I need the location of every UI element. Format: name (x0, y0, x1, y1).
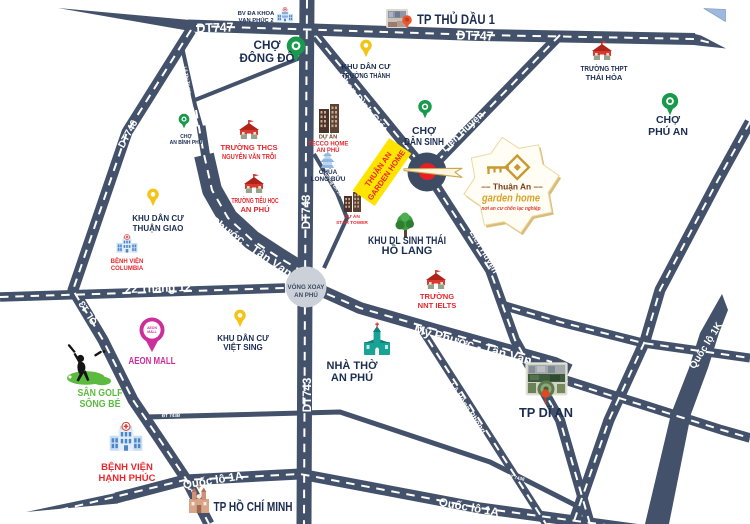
svg-text:CHÙA: CHÙA (319, 167, 338, 176)
svg-text:STAR TOWER: STAR TOWER (336, 220, 368, 226)
svg-text:AN BÌNH PHÚ: AN BÌNH PHÚ (170, 138, 203, 146)
svg-text:DÂN SINH: DÂN SINH (404, 135, 444, 148)
svg-text:TRƯỜNG: TRƯỜNG (420, 292, 454, 301)
svg-text:garden home: garden home (481, 193, 540, 205)
svg-text:SÔNG BÉ: SÔNG BÉ (80, 397, 121, 410)
svg-text:NNT IELTS: NNT IELTS (418, 301, 457, 310)
svg-text:DỰ ÁN: DỰ ÁN (344, 213, 360, 220)
svg-text:NGUYỄN VĂN TRỖI: NGUYỄN VĂN TRỖI (222, 152, 276, 161)
svg-text:CHỢ: CHỢ (254, 38, 282, 52)
svg-text:–– Thuận An ––: –– Thuận An –– (481, 182, 543, 192)
svg-text:BỆNH VIỆN: BỆNH VIỆN (111, 257, 144, 265)
svg-text:TRƯỜNG TIỂU HỌC: TRƯỜNG TIỂU HỌC (232, 196, 279, 205)
svg-text:TP HỒ CHÍ MINH: TP HỒ CHÍ MINH (214, 499, 293, 514)
svg-text:TECCO HOME: TECCO HOME (308, 142, 349, 148)
svg-text:ĐÔNG ĐÔ: ĐÔNG ĐÔ (240, 50, 295, 65)
svg-text:KHU DÂN CƯ: KHU DÂN CƯ (217, 334, 269, 343)
svg-text:DT743: DT743 (301, 195, 313, 230)
svg-text:TP DĨ AN: TP DĨ AN (519, 405, 573, 420)
svg-text:VẠN PHÚC 2: VẠN PHÚC 2 (238, 17, 273, 24)
svg-text:DT747: DT747 (196, 19, 234, 35)
svg-text:DT743: DT743 (302, 378, 314, 413)
svg-text:nơi an cư chốn lạc nghiệp: nơi an cư chốn lạc nghiệp (482, 205, 541, 212)
svg-text:KHU DÂN CƯ: KHU DÂN CƯ (342, 62, 392, 71)
svg-text:COLUMBIA: COLUMBIA (111, 266, 144, 272)
svg-text:TRƯỜNG THCS: TRƯỜNG THCS (220, 143, 277, 152)
svg-text:NHÀ THỜ: NHÀ THỜ (327, 359, 379, 372)
svg-text:TRƯỜNG THPT: TRƯỜNG THPT (581, 64, 628, 73)
svg-text:THÁI HÒA: THÁI HÒA (586, 73, 623, 82)
svg-text:KHU DÂN CƯ: KHU DÂN CƯ (132, 214, 184, 223)
svg-text:AN PHÚ: AN PHÚ (331, 371, 373, 384)
svg-text:ĐT 743B: ĐT 743B (162, 413, 181, 418)
svg-text:BV ĐA KHOA: BV ĐA KHOA (238, 11, 275, 17)
svg-text:DT747: DT747 (456, 27, 494, 43)
svg-text:BỆNH VIỆN: BỆNH VIỆN (101, 461, 153, 473)
svg-text:LONG BỬU: LONG BỬU (311, 174, 346, 183)
svg-text:HẠNH PHÚC: HẠNH PHÚC (99, 472, 156, 484)
svg-text:VÒNG XOAY: VÒNG XOAY (288, 283, 326, 291)
svg-text:22 Tháng 12: 22 Tháng 12 (125, 282, 192, 296)
svg-text:AN PHÚ: AN PHÚ (240, 205, 270, 214)
svg-text:AN PHÚ: AN PHÚ (294, 292, 318, 299)
svg-text:THUẬN GIAO: THUẬN GIAO (133, 224, 184, 233)
svg-text:DỰ ÁN: DỰ ÁN (319, 134, 337, 141)
svg-text:TRƯỜNG THÀNH: TRƯỜNG THÀNH (342, 71, 390, 80)
svg-text:TP THỦ DẦU 1: TP THỦ DẦU 1 (417, 12, 495, 27)
svg-text:AEON MALL: AEON MALL (129, 355, 176, 367)
svg-text:MALL: MALL (147, 330, 156, 334)
svg-text:VIỆT SING: VIỆT SING (223, 343, 263, 352)
svg-text:HỒ LANG: HỒ LANG (382, 244, 433, 257)
svg-text:SÂN GOLF: SÂN GOLF (78, 386, 123, 399)
svg-text:PHÚ AN: PHÚ AN (648, 125, 688, 138)
svg-text:CHỢ: CHỢ (656, 114, 680, 126)
